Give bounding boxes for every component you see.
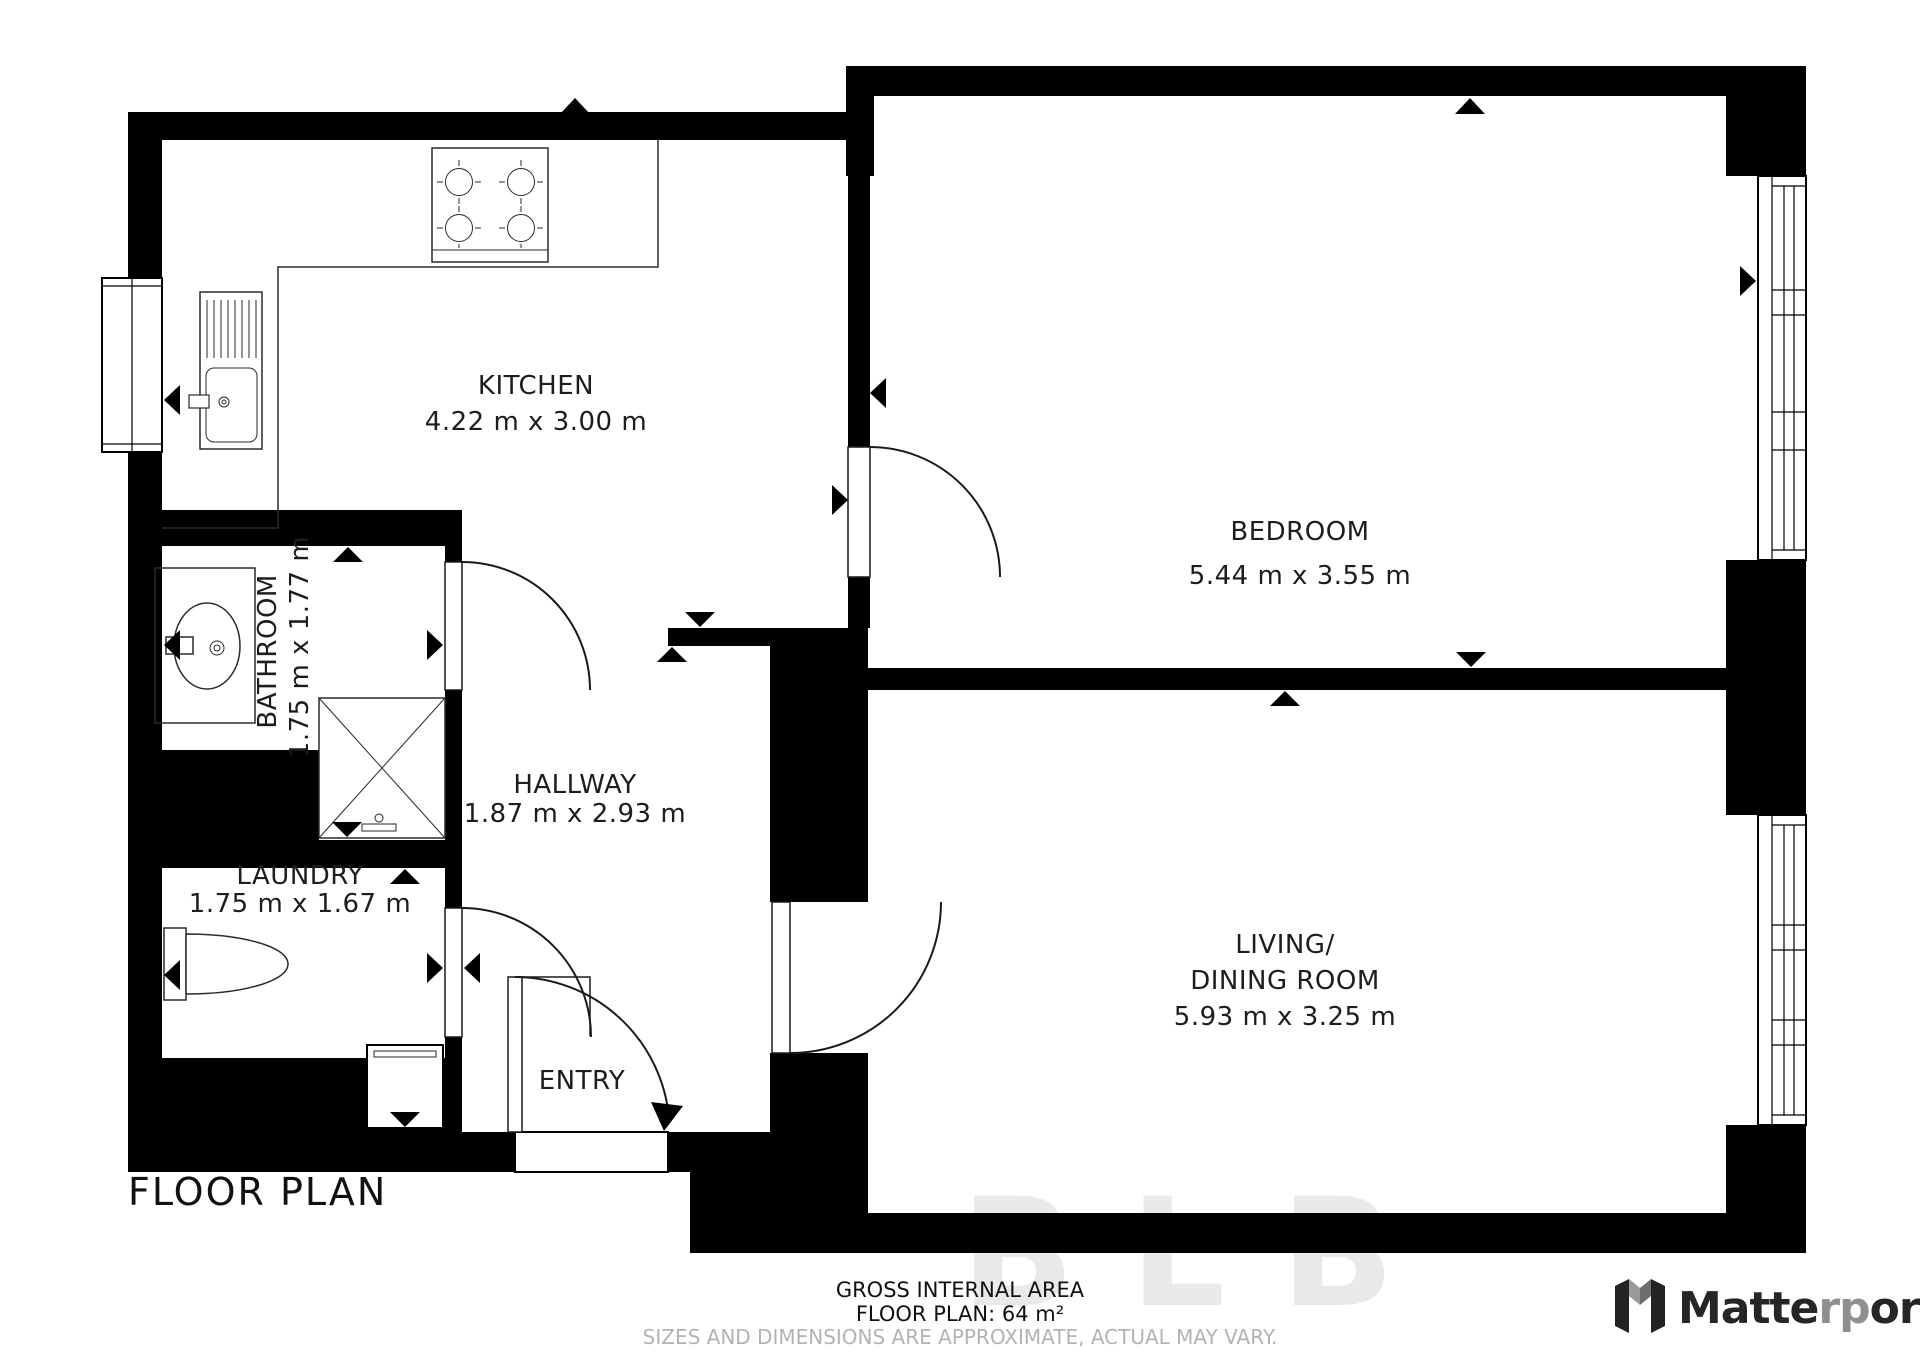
marker-kitchen-top-icon [560, 98, 590, 114]
living-dims: 5.93 m x 3.25 m [1174, 1002, 1396, 1032]
marker-laundry-door-right-icon [464, 953, 480, 983]
marker-laundry-top-icon [390, 869, 420, 884]
bathroom-label-dims: 1.75 m x 1.77 m [285, 536, 315, 758]
wall-center-column-upper [770, 628, 868, 902]
marker-bedroom-top-icon [1455, 98, 1485, 114]
bedroom-dims: 5.44 m x 3.55 m [1189, 561, 1411, 591]
bathroom-label-name: BATHROOM [253, 574, 283, 728]
wall-bedroom-living-divider [868, 668, 1726, 690]
wall-kitchen-bedroom-divider-upper [848, 176, 870, 447]
floor-plan-drawing: BLB [0, 0, 1920, 1358]
windows [102, 176, 1806, 1125]
matterport-logo-icon [1615, 1279, 1665, 1333]
marker-bedroom-window-icon [1740, 266, 1756, 296]
fixtures [155, 140, 658, 1128]
marker-kitchen-left-icon [164, 385, 180, 415]
laundry-dims: 1.75 m x 1.67 m [189, 889, 411, 919]
living-room-door [772, 902, 941, 1053]
bathroom-label: BATHROOM 1.75 m x 1.77 m [253, 536, 315, 758]
wordmark-prefix: Matte [1678, 1283, 1818, 1334]
marker-bathroom-top-icon [333, 547, 363, 562]
wall-hallway-left-mid [445, 690, 462, 840]
bedroom-label: BEDROOM [1230, 517, 1369, 547]
burner-grate-ticks [437, 160, 543, 248]
matterport-wordmark: Matterport [1678, 1283, 1920, 1334]
kitchen-dims: 4.22 m x 3.00 m [425, 407, 647, 437]
marker-living-divider-icon [1270, 691, 1300, 706]
entry-direction-arrow-icon [651, 1102, 683, 1131]
marker-bedroom-divider-bottom-icon [1456, 652, 1486, 667]
wall-hallway-left-upper [445, 510, 462, 562]
shower [319, 698, 445, 838]
wall-kitchen-top [128, 112, 872, 140]
stove-cooktop [432, 148, 548, 262]
marker-kitchen-divider-icon [832, 485, 848, 515]
direction-markers [164, 98, 1756, 1127]
entry-door-frame-lines [515, 977, 590, 1036]
laundry-label: LAUNDRY [236, 861, 363, 891]
hallway-dims: 1.87 m x 2.93 m [464, 799, 686, 829]
disclaimer-text: SIZES AND DIMENSIONS ARE APPROXIMATE, AC… [643, 1325, 1278, 1349]
gross-internal-area-label: GROSS INTERNAL AREA [836, 1278, 1085, 1302]
bathroom-door [445, 562, 590, 690]
kitchen-window [102, 278, 162, 452]
wall-entry-bottom-left [462, 1132, 515, 1172]
living-label-line2: DINING ROOM [1190, 966, 1380, 996]
wall-entry-bottom-right [668, 1132, 690, 1172]
wall-right-mid-column [1726, 560, 1806, 815]
wall-bedroom-top [846, 66, 1806, 96]
drainer-lines [207, 300, 256, 358]
marker-hallway-stub-top-icon [685, 612, 715, 627]
marker-hallway-stub-bottom-icon [657, 647, 687, 662]
matterport-logo: Matterport [1615, 1279, 1920, 1334]
entry-threshold [515, 1132, 668, 1172]
wordmark-mid: rp [1818, 1283, 1869, 1334]
floor-plan-page: BLB [0, 0, 1920, 1358]
kitchen-sink-unit [189, 292, 262, 449]
living-label-line1: LIVING/ [1235, 930, 1334, 960]
marker-shower-bottom-icon [332, 822, 362, 837]
marker-laundry-door-left-icon [427, 953, 443, 983]
bedroom-window [1758, 176, 1806, 560]
wall-living-bottom [690, 1213, 1806, 1253]
entry-label: ENTRY [539, 1066, 626, 1096]
wall-bathroom-lower-block [128, 750, 319, 840]
wall-laundry-right-upper [445, 868, 462, 908]
kitchen-counter [162, 140, 658, 528]
bedroom-door [848, 447, 1000, 577]
wall-hallway-stub [668, 628, 770, 646]
kitchen-label: KITCHEN [478, 371, 594, 401]
living-window [1758, 815, 1806, 1125]
hallway-label: HALLWAY [513, 770, 636, 800]
marker-bedroom-divider-icon [870, 378, 886, 408]
wall-kitchen-bedroom-divider-lower [848, 577, 870, 628]
wall-left-upper [128, 112, 162, 278]
wall-bedroom-right-corner [1726, 96, 1806, 176]
marker-bathroom-door-icon [427, 630, 443, 660]
toilet [164, 928, 288, 1000]
marker-bathroom-left-icon [164, 630, 180, 660]
floor-plan-title: FLOOR PLAN [128, 1170, 387, 1214]
wordmark-suffix: ort [1870, 1283, 1920, 1334]
floor-plan-area-value: FLOOR PLAN: 64 m² [856, 1302, 1064, 1326]
